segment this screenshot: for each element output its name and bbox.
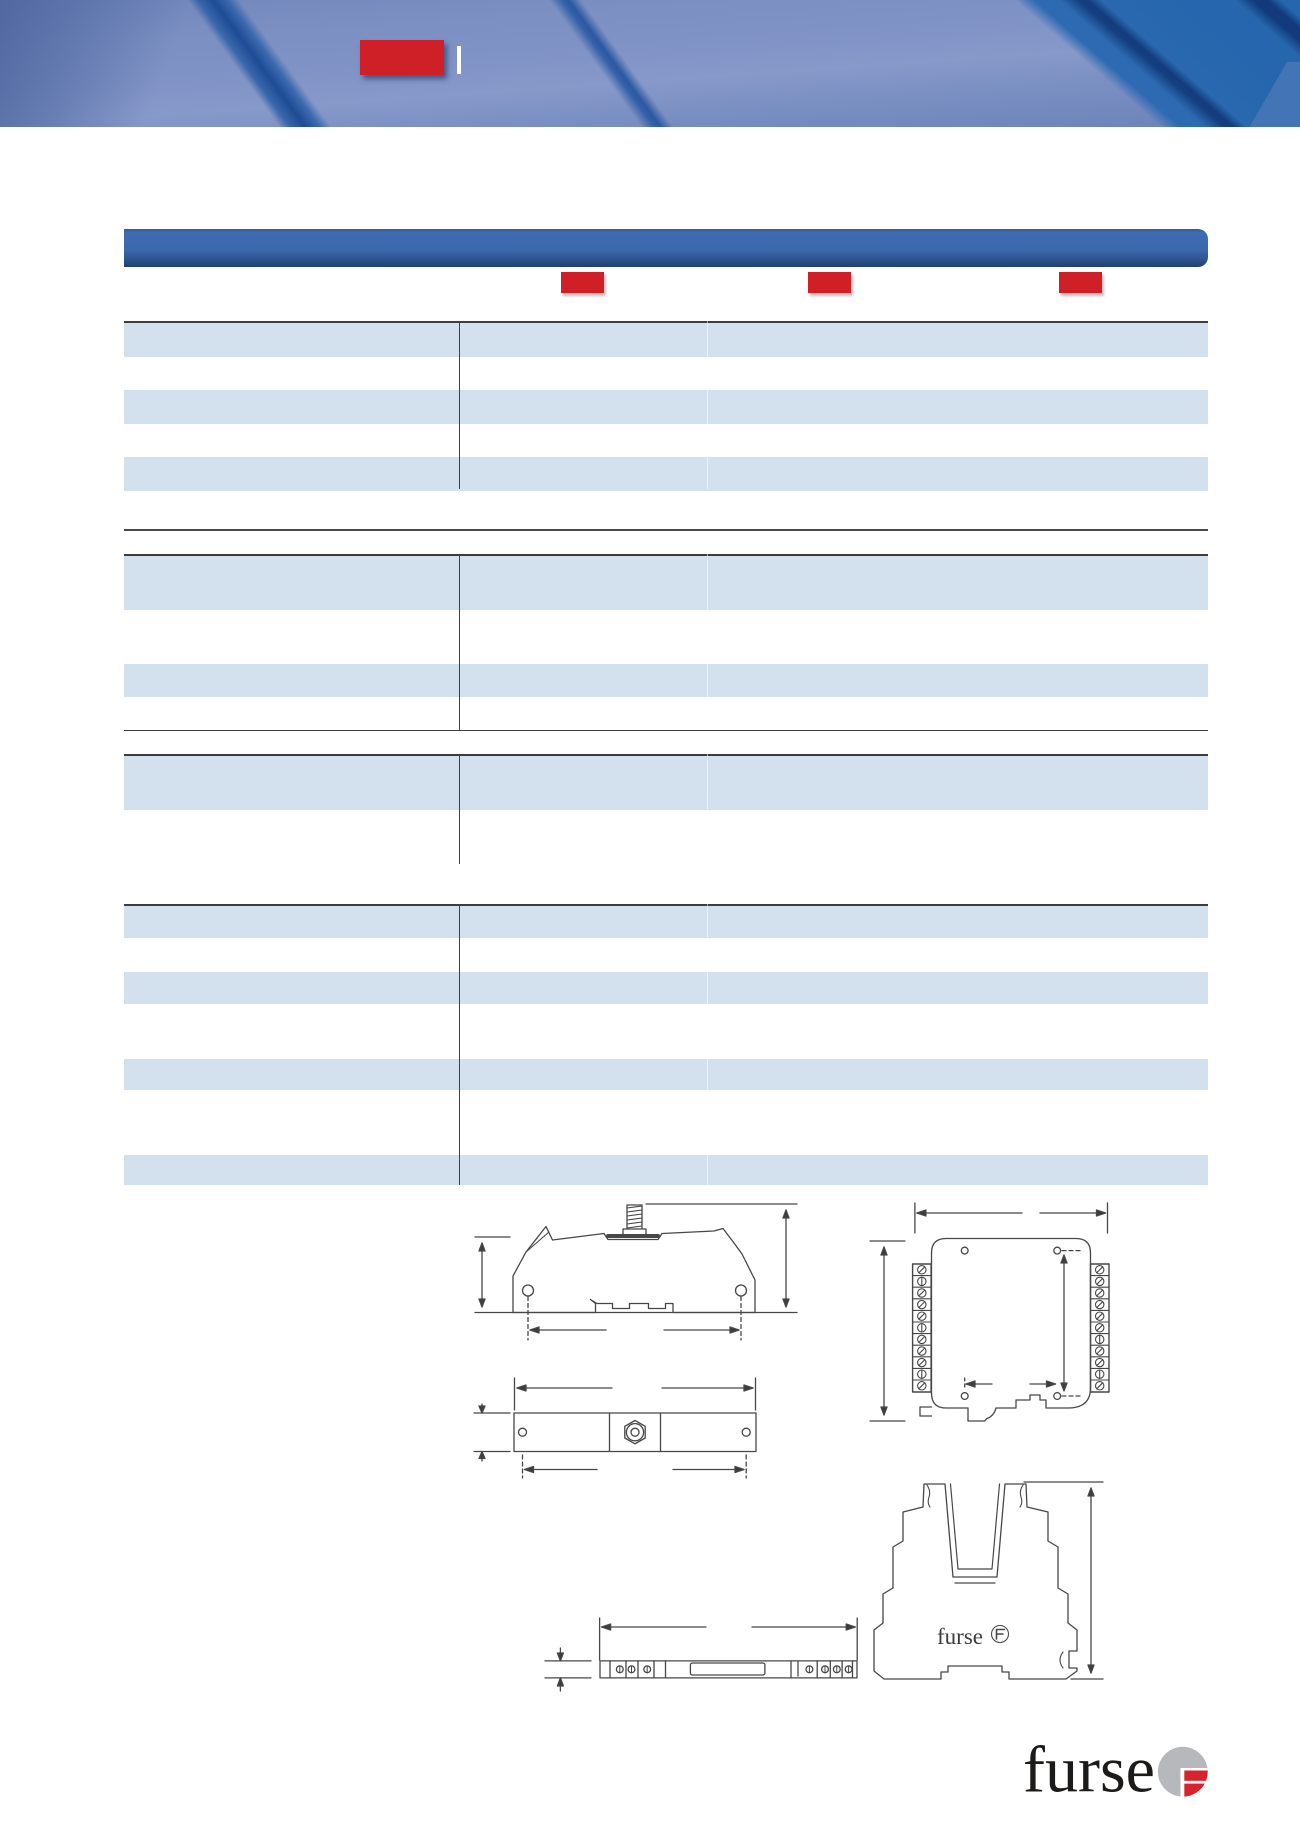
svg-text:furse: furse (1023, 1735, 1155, 1807)
svg-text:furse: furse (937, 1624, 983, 1649)
